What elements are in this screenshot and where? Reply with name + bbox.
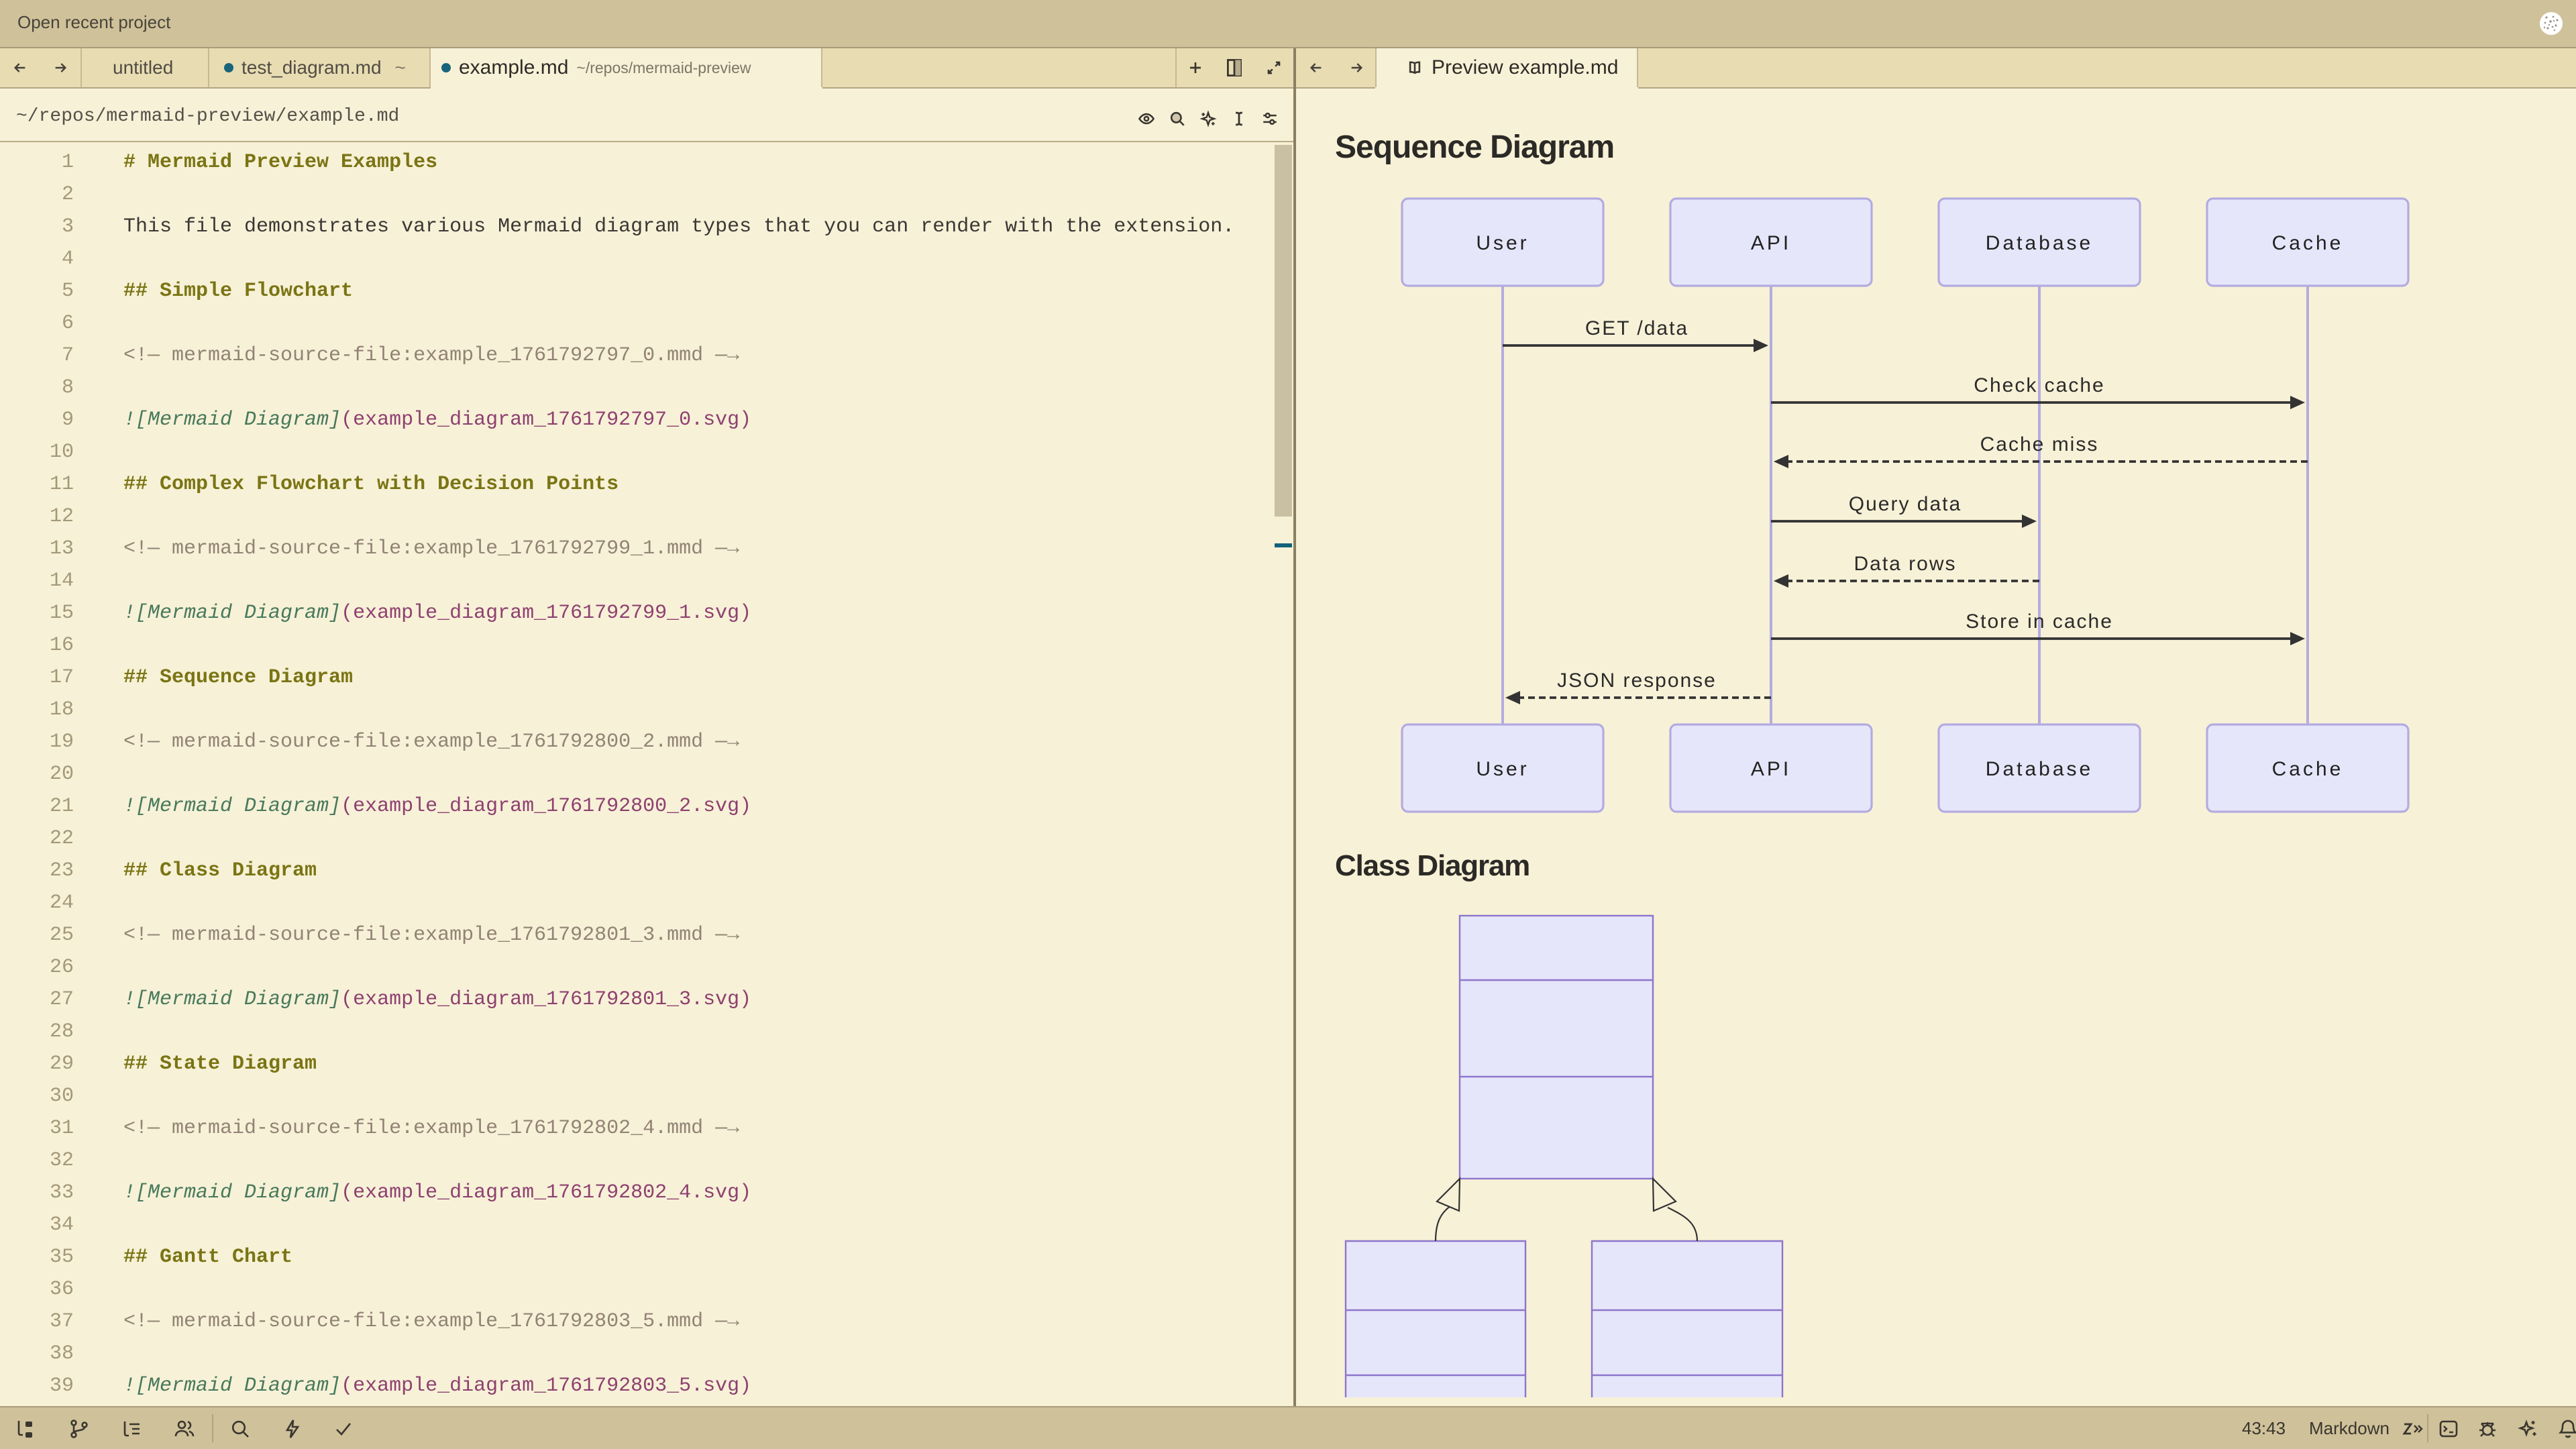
svg-text:GET /data: GET /data: [1585, 317, 1688, 339]
svg-text:Cache miss: Cache miss: [1980, 433, 2099, 455]
svg-text:Database: Database: [1986, 232, 2093, 254]
svg-text:API: API: [1751, 232, 1791, 254]
svg-text:Store in cache: Store in cache: [1966, 610, 2113, 633]
svg-text:User: User: [1476, 758, 1529, 780]
svg-text:Database: Database: [1986, 758, 2093, 780]
svg-text:JSON response: JSON response: [1557, 669, 1717, 692]
svg-text:Data rows: Data rows: [1854, 553, 1956, 575]
svg-text:Query data: Query data: [1849, 493, 1962, 515]
svg-text:Cache: Cache: [2272, 758, 2344, 780]
svg-text:User: User: [1476, 232, 1529, 254]
svg-text:API: API: [1751, 758, 1791, 780]
svg-text:Cache: Cache: [2272, 232, 2344, 254]
svg-text:Check cache: Check cache: [1974, 374, 2104, 396]
